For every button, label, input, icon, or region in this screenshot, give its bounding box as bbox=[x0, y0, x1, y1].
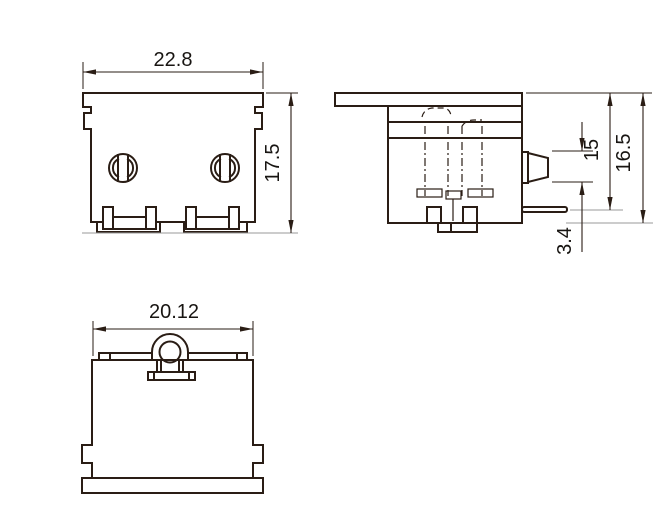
dimension-bottom-width: 20.12 bbox=[93, 301, 253, 356]
mounting-eyelet bbox=[148, 334, 195, 380]
bottom-base-plate bbox=[82, 478, 263, 493]
front-foot-group-left bbox=[97, 207, 160, 232]
side-view: 15 16.5 3.4 bbox=[335, 93, 653, 255]
front-view: 22.8 17.5 bbox=[82, 49, 298, 233]
dimension-label-side-total: 16.5 bbox=[613, 134, 635, 173]
side-body-outline bbox=[388, 106, 522, 223]
dimension-front-width: 22.8 bbox=[83, 49, 263, 89]
side-flange bbox=[335, 93, 522, 106]
screw-left-icon bbox=[109, 154, 137, 182]
bottom-view: 20.12 bbox=[82, 301, 263, 493]
front-body-outline bbox=[83, 93, 263, 222]
three-view-dimension-drawing: 22.8 17.5 bbox=[0, 0, 664, 519]
dimension-label-side-pin: 15 bbox=[581, 139, 603, 161]
dimension-label-front-width: 22.8 bbox=[154, 49, 193, 71]
contact-pin bbox=[522, 207, 567, 212]
hidden-center-lines bbox=[425, 126, 482, 196]
side-latch bbox=[522, 152, 548, 183]
dimension-label-bottom-width: 20.12 bbox=[149, 301, 199, 323]
side-foot-right bbox=[463, 207, 477, 223]
dimension-label-side-tab: 3.4 bbox=[554, 227, 576, 255]
screw-right-icon bbox=[211, 154, 239, 182]
side-foot-left bbox=[427, 207, 441, 223]
top-rim-strips bbox=[99, 353, 247, 360]
hidden-eyelet-arc bbox=[422, 108, 451, 117]
technical-drawing-page: 22.8 17.5 bbox=[0, 0, 664, 519]
side-bottom-tab bbox=[438, 223, 477, 232]
dimension-label-front-height: 17.5 bbox=[262, 144, 284, 183]
front-foot-group-right bbox=[184, 207, 247, 232]
